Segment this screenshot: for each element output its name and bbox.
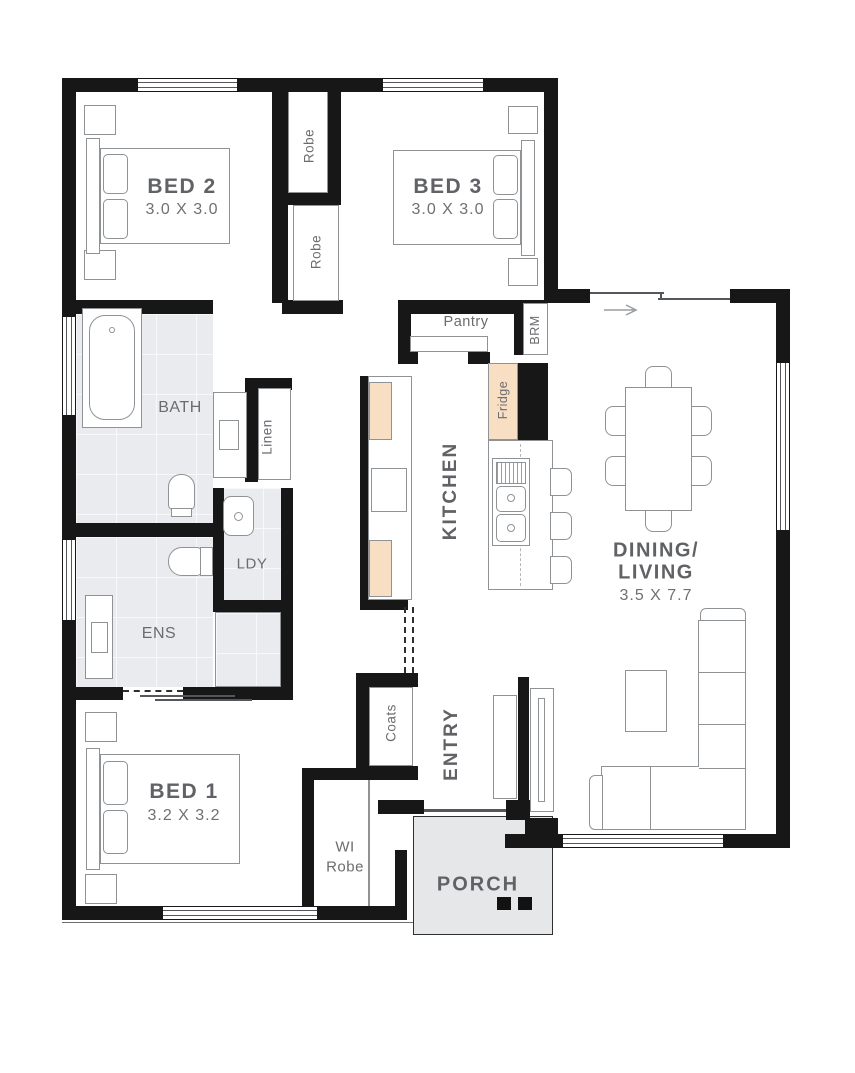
slab-edge-line	[62, 922, 413, 923]
dining-chair	[605, 406, 626, 436]
ens-toilet-icon	[168, 547, 202, 576]
room-label-bath: BATH	[158, 399, 201, 417]
sofa-cushion-line	[699, 724, 745, 725]
wall-left	[62, 78, 76, 920]
window-bed2	[138, 78, 237, 92]
kitchen-bench-appliance	[369, 540, 392, 597]
sliding-door-panel	[658, 298, 730, 300]
room-label-kitchen: KITCHEN	[440, 442, 462, 540]
ens-toilet-tank	[200, 547, 213, 576]
room-label-dining-living: LIVING	[618, 562, 694, 585]
dining-chair	[691, 406, 712, 436]
floor-plan: BED 2 3.0 X 3.0 BED 3 3.0 X 3.0 BED 1 3.…	[0, 0, 855, 1073]
dining-table-icon	[625, 387, 692, 511]
wall-robe1-right	[328, 92, 341, 205]
toilet-base	[171, 508, 192, 517]
porch-post	[518, 897, 532, 910]
porch-post	[497, 897, 511, 910]
room-label-robe-bed3: Robe	[309, 235, 324, 269]
bedside-table	[84, 250, 116, 280]
sliding-door-panel	[590, 292, 664, 294]
sofa-cushion-line	[650, 767, 651, 829]
wall-wirobe-top	[302, 768, 370, 780]
room-label-pantry: Pantry	[444, 314, 489, 330]
sink-drainer	[496, 462, 526, 484]
wall-ens-bottom	[62, 687, 123, 700]
window-dining	[776, 363, 790, 530]
bedside-table	[84, 105, 116, 135]
coffee-table	[625, 670, 667, 732]
kitchen-bench-appliance	[369, 382, 392, 440]
dining-chair	[605, 456, 626, 486]
sink-drain	[507, 524, 515, 532]
wall-pantry-stub	[468, 352, 490, 364]
wall-porch-left	[395, 850, 407, 920]
room-dim-bed2: 3.0 X 3.0	[145, 201, 218, 219]
room-label-linen: Linen	[260, 419, 275, 455]
dining-chair	[645, 366, 672, 388]
wall-entry-bottom	[378, 800, 424, 814]
cavity-slider-door	[140, 695, 235, 697]
wall-coats-left	[356, 673, 369, 780]
wall-robe-divider	[288, 193, 341, 205]
toilet-icon	[168, 474, 195, 510]
stool-icon	[550, 512, 572, 540]
window-bath	[62, 317, 76, 415]
room-label-ldy: LDY	[237, 556, 268, 573]
bed-pillow	[103, 199, 128, 239]
room-dim-dining-living: 3.5 X 7.7	[619, 587, 692, 605]
room-label-ens: ENS	[142, 625, 176, 643]
bedside-table	[508, 106, 538, 134]
tv-panel	[538, 698, 545, 802]
window-bed1	[163, 906, 317, 920]
bed-pillow	[103, 154, 128, 194]
stool-icon	[550, 468, 572, 496]
wall-wirobe-left	[302, 768, 314, 920]
wall-bedrooms-bottom	[282, 300, 343, 314]
bed-headboard	[521, 140, 535, 256]
ens-basin	[91, 622, 108, 653]
sink-drain	[507, 494, 515, 502]
wall-bed3-right	[544, 78, 558, 303]
room-label-bed3: BED 3	[413, 175, 482, 199]
wall-brm-left	[514, 303, 523, 355]
room-label-brm: BRM	[528, 315, 542, 344]
sofa-cushion-line	[699, 672, 745, 673]
laundry-tub-drain	[234, 512, 243, 521]
window-living	[563, 834, 723, 848]
wall-entry-bottom	[506, 800, 530, 820]
room-label-bed2: BED 2	[147, 175, 216, 199]
wall-top	[62, 78, 558, 92]
bulkhead-dashed-line	[404, 607, 406, 673]
bath-basin	[219, 420, 239, 450]
room-label-dining-living: DINING/	[613, 540, 699, 563]
room-label-wi-robe: WI	[335, 839, 354, 856]
bed-pillow	[103, 761, 128, 805]
sliding-door-meeting-stile	[660, 292, 662, 300]
wall-robe-column	[272, 92, 288, 303]
wall-entry-right	[518, 677, 529, 803]
room-label-robe-bed2: Robe	[302, 129, 317, 163]
sliding-door-arrow	[602, 303, 646, 317]
bulkhead-dashed-line	[412, 607, 414, 673]
room-dim-bed1: 3.2 X 3.2	[147, 807, 220, 825]
pantry-shelf	[410, 336, 488, 352]
wall-fridge-right	[518, 363, 548, 440]
bedside-table	[85, 712, 117, 742]
wall-bath-ens	[62, 523, 213, 537]
room-label-porch: PORCH	[437, 874, 519, 897]
room-label-wi-robe: Robe	[326, 859, 364, 876]
bed-pillow	[493, 199, 518, 239]
sofa-icon	[698, 620, 746, 830]
room-label-entry: ENTRY	[441, 707, 463, 781]
wall-living-corner	[525, 818, 558, 848]
entry-console	[493, 695, 517, 799]
window-bed3	[383, 78, 483, 92]
room-dim-bed3: 3.0 X 3.0	[411, 201, 484, 219]
bed-headboard	[86, 138, 100, 254]
ens-shower-floor	[215, 612, 281, 687]
room-label-bed1: BED 1	[149, 780, 218, 804]
room-label-coats: Coats	[384, 704, 399, 742]
wall-hall-west	[281, 488, 293, 699]
dining-chair	[691, 456, 712, 486]
room-label-fridge: Fridge	[496, 381, 510, 419]
bed-pillow	[493, 155, 518, 195]
sofa-cushion-line	[699, 768, 745, 769]
front-door-leaf	[424, 809, 506, 812]
bathtub-drain	[109, 327, 115, 333]
stool-icon	[550, 556, 572, 584]
cavity-slider-dashed	[123, 690, 183, 692]
kitchen-oven	[371, 468, 407, 512]
window-ens	[62, 540, 76, 620]
dining-chair	[645, 510, 672, 532]
bedside-table	[85, 874, 117, 904]
wirobe-shelf-line	[368, 780, 370, 906]
bed-headboard	[86, 748, 100, 870]
sofa-arm	[589, 775, 603, 830]
wall-pantry-stub	[398, 352, 418, 364]
bedside-table	[508, 258, 538, 286]
bed-pillow	[103, 810, 128, 854]
cavity-slider-door	[155, 699, 252, 701]
